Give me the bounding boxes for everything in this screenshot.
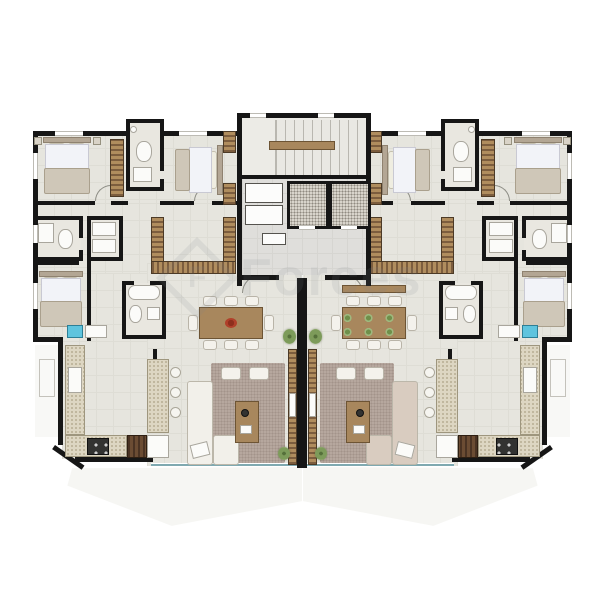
- wall: [58, 337, 63, 445]
- tv: [309, 393, 316, 417]
- wardrobe: [481, 139, 495, 197]
- closet-shelf: [92, 239, 116, 253]
- stool: [170, 367, 181, 378]
- table-centerpiece: [225, 318, 237, 328]
- wall: [79, 220, 83, 238]
- bedroom2-bed: [175, 145, 223, 195]
- nightstand: [504, 137, 512, 145]
- closet-shelf: [489, 239, 513, 253]
- wall: [441, 119, 445, 171]
- wall: [119, 216, 123, 261]
- window: [567, 225, 572, 243]
- bathtub: [445, 285, 477, 300]
- closet-shelf: [489, 222, 513, 236]
- laundry-tank: [67, 325, 83, 338]
- plant: [309, 329, 322, 344]
- toilet: [532, 229, 547, 249]
- closet-shelf: [92, 222, 116, 236]
- plant: [278, 447, 290, 460]
- bedroom3-bed: [39, 271, 83, 329]
- wall: [475, 119, 479, 191]
- dining-chair: [203, 340, 217, 350]
- place-settings: [344, 309, 404, 337]
- elevator-1: [287, 181, 329, 229]
- laundry-counter: [85, 325, 107, 338]
- stool: [170, 387, 181, 398]
- refrigerator: [436, 435, 458, 458]
- dining-chair: [264, 315, 274, 331]
- stool: [424, 367, 435, 378]
- wall: [441, 119, 479, 123]
- wall: [160, 119, 164, 171]
- bathroom-sink: [445, 307, 458, 320]
- dining-chair: [346, 340, 360, 350]
- bedroom1-bed: [514, 137, 562, 195]
- elevator-door: [299, 225, 315, 230]
- armchair: [364, 367, 384, 380]
- dining-chair: [367, 296, 381, 306]
- shower-box: [38, 223, 54, 243]
- stove: [87, 438, 109, 455]
- building-core: [237, 111, 371, 286]
- laundry-tank: [522, 325, 538, 338]
- nightstand: [34, 137, 42, 145]
- toilet: [136, 141, 152, 162]
- dining-chair: [224, 296, 238, 306]
- bedroom2-bed: [382, 145, 430, 195]
- bedroom1-bed: [43, 137, 91, 195]
- bedroom3-bed: [522, 271, 566, 329]
- wardrobe: [223, 131, 236, 153]
- shower-drain: [468, 126, 475, 133]
- wall: [477, 201, 494, 205]
- bathroom-sink: [133, 167, 152, 182]
- stove: [496, 438, 518, 455]
- wall: [439, 335, 483, 339]
- vase: [241, 409, 249, 417]
- service-shaft: [245, 183, 283, 203]
- bathtub: [128, 285, 160, 300]
- elevator-door: [341, 225, 357, 230]
- wall: [510, 201, 572, 205]
- vase: [356, 409, 364, 417]
- kitchen-island: [147, 359, 169, 433]
- balcony-slab: [303, 467, 540, 529]
- stool: [424, 387, 435, 398]
- dining-chair: [331, 315, 341, 331]
- window: [567, 283, 572, 309]
- walkin-closet: [369, 261, 454, 274]
- dining-chair: [245, 296, 259, 306]
- bathroom-sink: [453, 167, 472, 182]
- dining-chair: [407, 315, 417, 331]
- tray: [240, 425, 252, 434]
- wall: [160, 201, 194, 205]
- toilet: [129, 305, 142, 323]
- wall: [111, 201, 128, 205]
- dining-chair: [245, 340, 259, 350]
- dining-chair: [224, 340, 238, 350]
- dining-chair: [367, 340, 381, 350]
- wall: [526, 261, 572, 265]
- dining-chair: [388, 340, 402, 350]
- stair-handrail: [269, 141, 335, 150]
- toilet: [463, 305, 476, 323]
- wall: [242, 275, 279, 280]
- wall: [479, 281, 483, 339]
- coffee-table: [235, 401, 259, 443]
- elevator-2: [329, 181, 371, 229]
- wall: [33, 216, 83, 220]
- wall: [411, 201, 445, 205]
- kitchen-cabinet: [458, 435, 478, 458]
- tray: [353, 425, 365, 434]
- floor-plan-canvas: F Forces: [0, 0, 605, 600]
- window: [522, 131, 550, 136]
- window: [567, 153, 572, 179]
- wardrobe: [110, 139, 124, 197]
- wall: [522, 220, 526, 238]
- sideboard: [342, 285, 406, 293]
- window: [55, 131, 83, 136]
- wall: [522, 216, 572, 220]
- armchair: [221, 367, 241, 380]
- wall: [33, 261, 79, 265]
- wall: [514, 216, 518, 261]
- armchair: [249, 367, 269, 380]
- bathroom-sink: [147, 307, 160, 320]
- wall: [122, 281, 126, 339]
- nightstand: [563, 137, 571, 145]
- kitchen-cabinet: [127, 435, 147, 458]
- wall: [325, 275, 366, 280]
- toilet: [58, 229, 73, 249]
- coffee-table: [346, 401, 370, 443]
- wall: [122, 335, 166, 339]
- window: [250, 113, 266, 118]
- window: [318, 113, 334, 118]
- kitchen-island: [436, 359, 458, 433]
- wall: [242, 175, 366, 179]
- wall: [482, 216, 518, 220]
- wall: [439, 281, 443, 339]
- walkin-closet: [151, 261, 236, 274]
- party-wall-divider: [297, 278, 307, 468]
- kitchen-sink: [523, 367, 537, 393]
- window: [33, 153, 38, 179]
- wall: [87, 257, 123, 261]
- toilet: [453, 141, 469, 162]
- window: [33, 283, 38, 309]
- laundry-counter: [498, 325, 520, 338]
- tv: [289, 393, 296, 417]
- refrigerator: [147, 435, 169, 458]
- shower-box: [551, 223, 567, 243]
- wall: [162, 281, 166, 339]
- window: [398, 131, 426, 136]
- wall: [482, 216, 486, 261]
- balcony-slab: [65, 467, 302, 529]
- wall: [87, 216, 123, 220]
- plant: [283, 329, 296, 344]
- dining-chair: [388, 296, 402, 306]
- stool: [424, 407, 435, 418]
- window: [179, 131, 207, 136]
- wall: [441, 187, 479, 191]
- plant: [315, 447, 327, 460]
- dining-chair: [346, 296, 360, 306]
- wall: [542, 337, 547, 445]
- sunbed: [39, 359, 55, 397]
- wall: [33, 201, 95, 205]
- stool: [170, 407, 181, 418]
- wardrobe: [223, 183, 236, 205]
- wall: [482, 257, 518, 261]
- hall-closet: [262, 233, 286, 245]
- nightstand: [93, 137, 101, 145]
- wall: [126, 187, 164, 191]
- wall: [237, 113, 242, 286]
- dining-chair: [188, 315, 198, 331]
- kitchen-sink: [68, 367, 82, 393]
- armchair: [336, 367, 356, 380]
- wall: [87, 216, 91, 261]
- dining-chair: [203, 296, 217, 306]
- service-shaft: [245, 205, 283, 225]
- shower-drain: [130, 126, 137, 133]
- sunbed: [550, 359, 566, 397]
- wall: [126, 119, 164, 123]
